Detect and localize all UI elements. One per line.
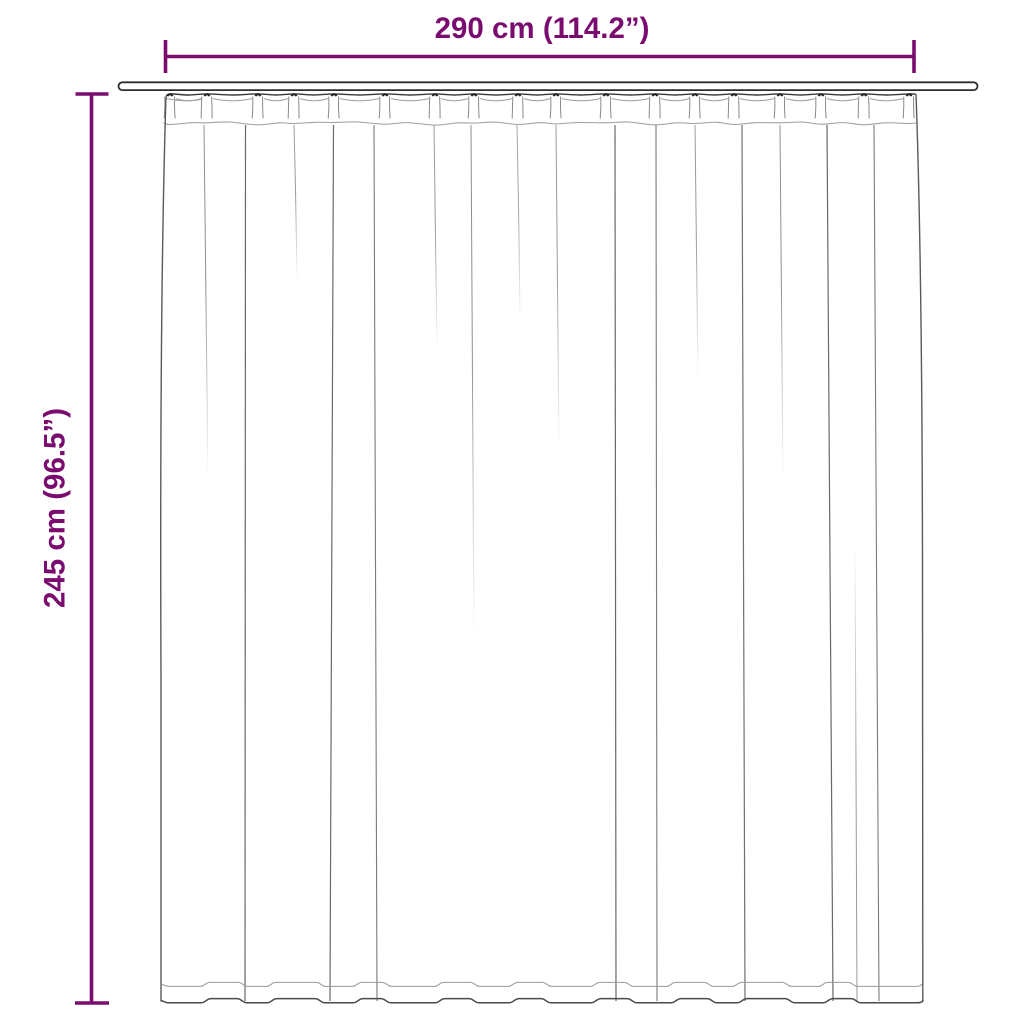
svg-text:290 cm (114.2”): 290 cm (114.2”) [435, 12, 650, 45]
svg-text:245 cm (96.5”): 245 cm (96.5”) [39, 408, 72, 608]
